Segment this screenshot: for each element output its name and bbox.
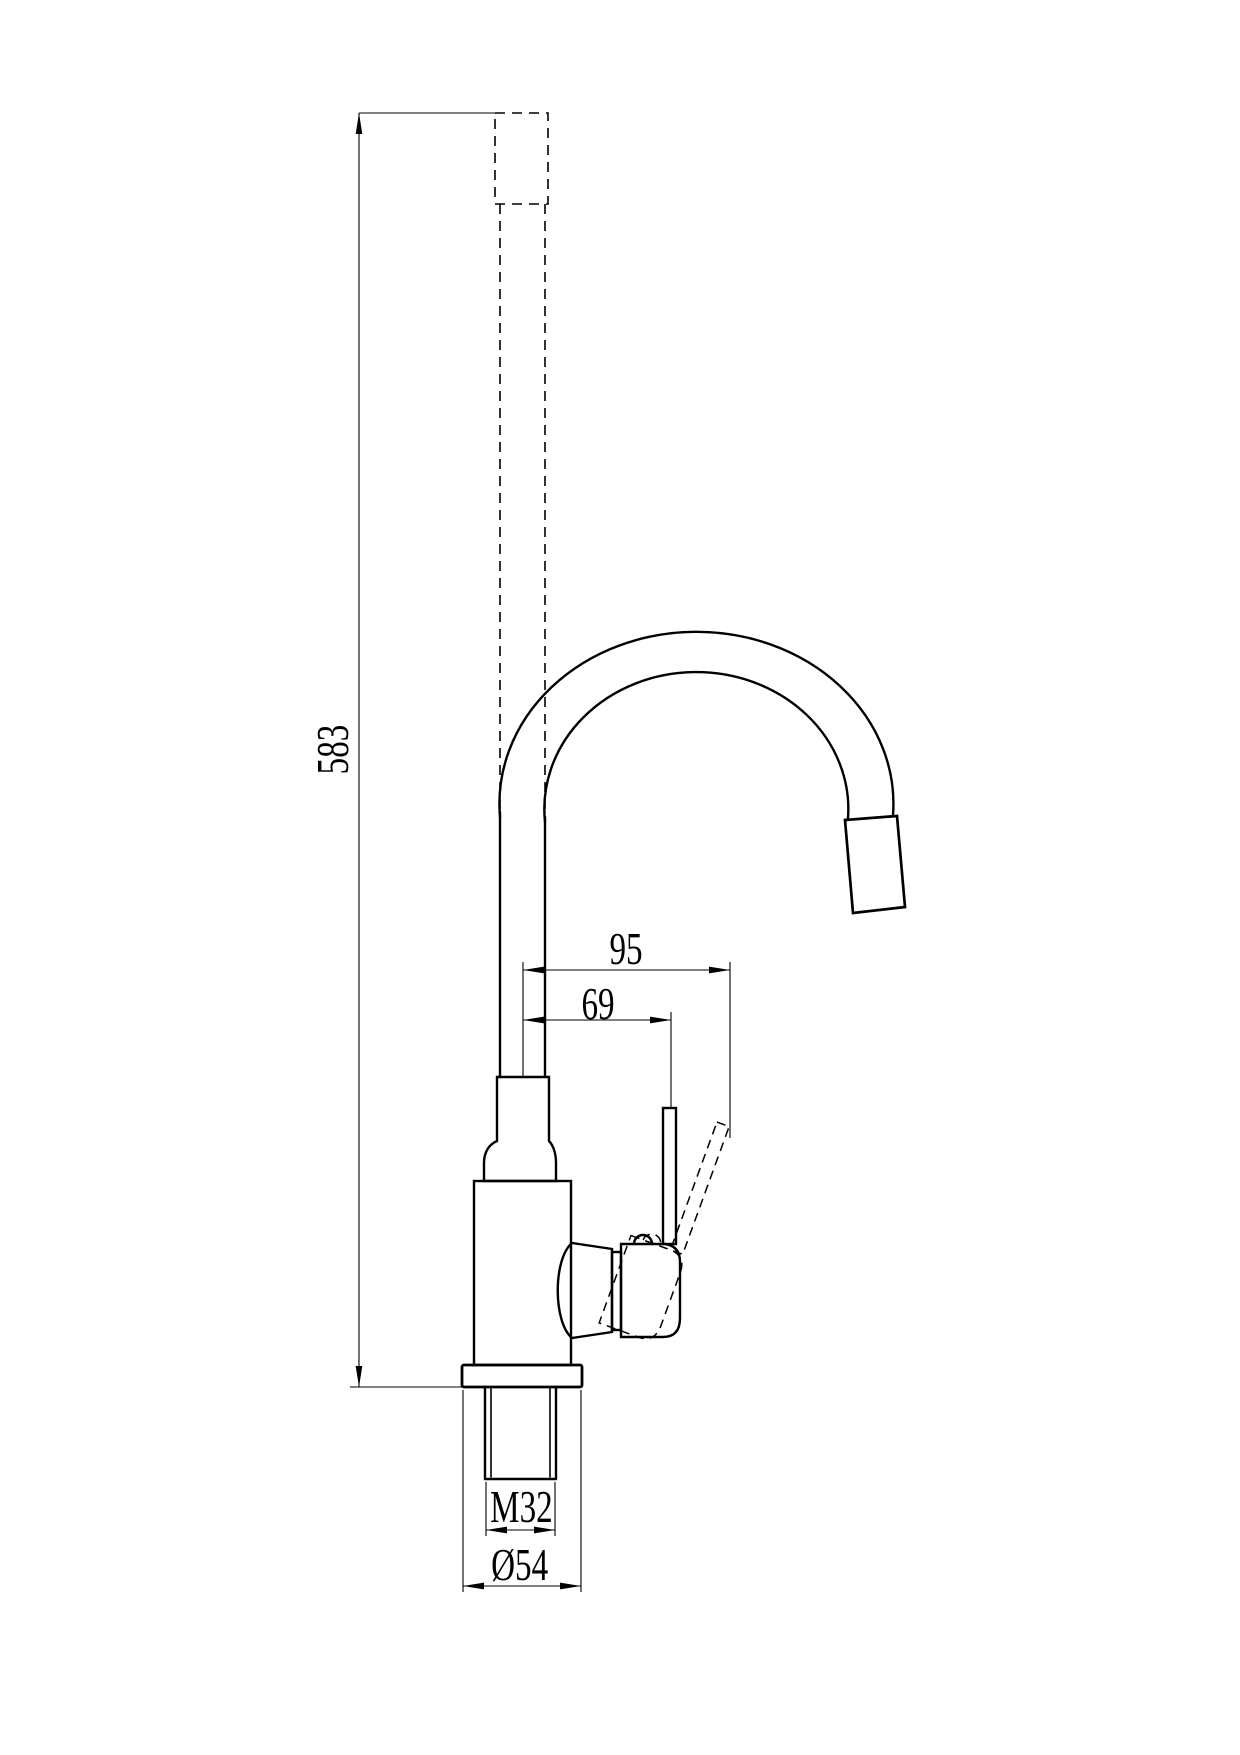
nozzle xyxy=(845,816,905,913)
handle-body xyxy=(621,1244,680,1337)
handle-lever-dashed xyxy=(670,1122,729,1254)
gooseneck-outer xyxy=(499,632,893,817)
dim-label-diameter: Ø54 xyxy=(420,1535,620,1595)
spout-outlet-dashed xyxy=(495,113,548,204)
dimension-arrows xyxy=(356,113,730,1589)
body-collar xyxy=(484,1077,556,1181)
dim-label-spout-reach: 95 xyxy=(526,919,726,979)
dimension-lines xyxy=(350,113,730,1592)
faucet-technical-drawing: 583 95 69 M32 Ø54 xyxy=(0,0,1240,1755)
faucet-outline xyxy=(462,632,905,1479)
handle-dashed-position xyxy=(599,1108,733,1343)
dim-label-height: 583 xyxy=(303,650,363,850)
dim-label-thread: M32 xyxy=(421,1477,621,1537)
spout-dashed-position xyxy=(495,113,548,822)
base-plate xyxy=(462,1365,582,1387)
body-column xyxy=(474,1181,571,1365)
handle-ring xyxy=(612,1252,621,1330)
dim-label-handle-offset: 69 xyxy=(498,974,698,1034)
handle-lever xyxy=(663,1108,676,1244)
valve-boss xyxy=(558,1243,612,1338)
gooseneck-inner xyxy=(544,672,848,822)
